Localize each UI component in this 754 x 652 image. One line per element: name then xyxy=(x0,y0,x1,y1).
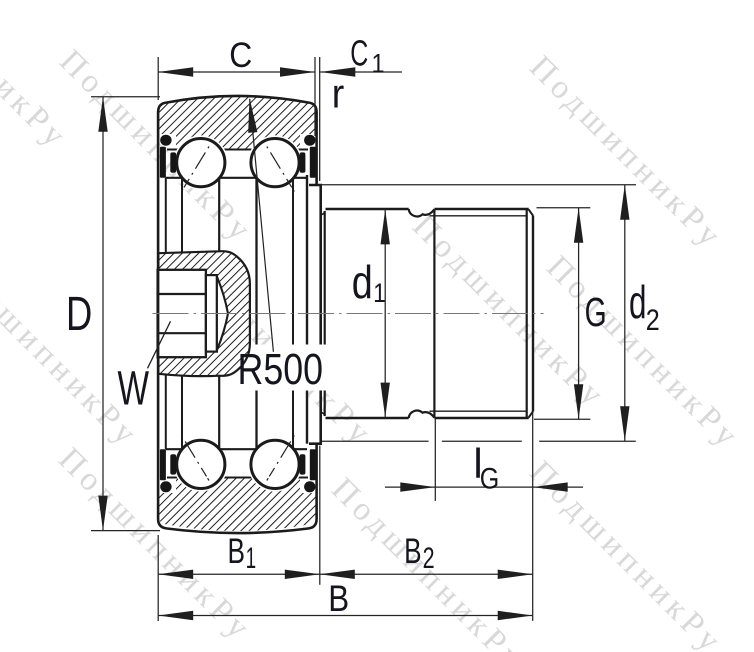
svg-text:G: G xyxy=(585,289,607,335)
svg-text:1: 1 xyxy=(372,49,385,79)
svg-text:r: r xyxy=(332,71,345,117)
svg-text:B: B xyxy=(404,532,422,571)
svg-text:d: d xyxy=(629,276,647,328)
svg-text:2: 2 xyxy=(423,542,435,575)
svg-text:D: D xyxy=(66,288,92,341)
svg-text:d: d xyxy=(352,256,373,308)
svg-text:C: C xyxy=(229,36,252,75)
svg-text:1: 1 xyxy=(373,278,386,308)
svg-text:C: C xyxy=(350,32,368,73)
svg-text:W: W xyxy=(118,363,150,416)
svg-text:B: B xyxy=(328,578,349,619)
svg-text:G: G xyxy=(480,463,500,496)
svg-text:2: 2 xyxy=(646,304,660,337)
svg-text:B: B xyxy=(228,532,246,571)
svg-text:R500: R500 xyxy=(238,345,324,394)
svg-text:1: 1 xyxy=(246,542,257,575)
